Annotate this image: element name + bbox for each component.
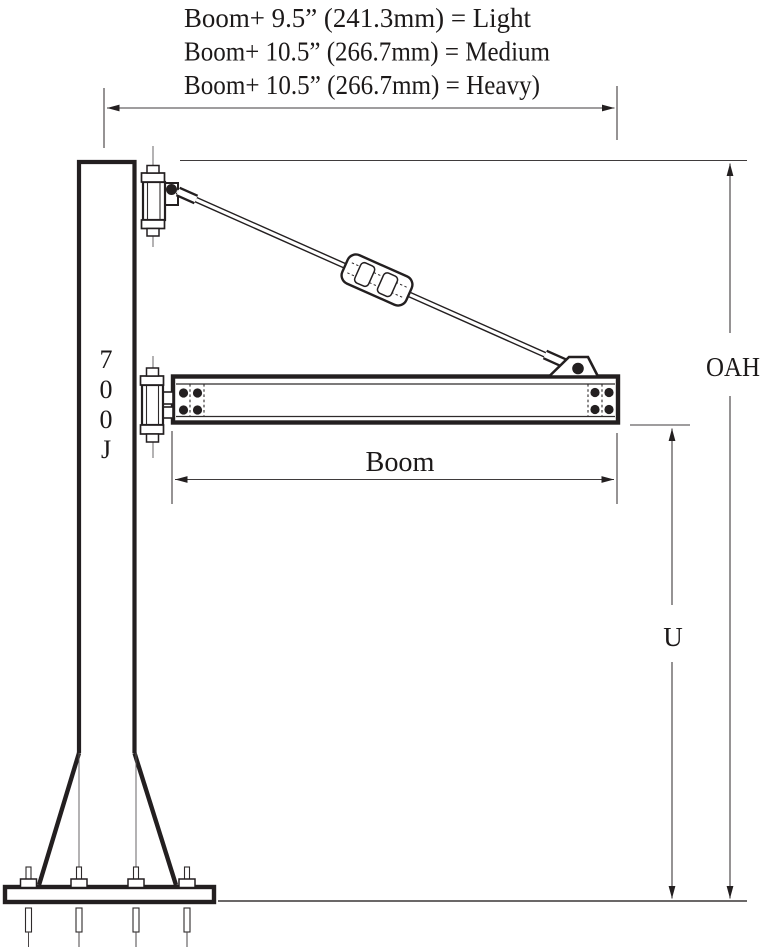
column-label-char: 0 [100, 405, 113, 434]
column-label-char: J [101, 435, 111, 464]
boom-pivot-assembly [141, 356, 174, 458]
jib-crane-diagram: Boom+ 9.5” (241.3mm) = Light Boom+ 10.5”… [0, 0, 764, 950]
mast-column: 7 0 0 J [39, 162, 176, 886]
anchor-bolt [179, 867, 195, 947]
boom-length-annotations: Boom+ 9.5” (241.3mm) = Light Boom+ 10.5”… [184, 3, 550, 100]
pivot-nut-top [141, 376, 164, 385]
boom-label: Boom [366, 447, 435, 478]
jib-crane-diagram-page: Boom+ 9.5” (241.3mm) = Light Boom+ 10.5”… [0, 0, 764, 950]
annotation-medium: Boom+ 10.5” (266.7mm) = Medium [184, 37, 550, 67]
column-model-label: 7 0 0 J [100, 345, 113, 464]
anchor-bolt [128, 867, 144, 947]
top-pivot-pin [166, 184, 177, 195]
boom-beam [173, 377, 618, 423]
annotation-heavy: Boom+ 10.5” (266.7mm) = Heavy) [184, 70, 540, 100]
oah-dimension: OAH [180, 161, 760, 899]
pivot-bolt-cap-top [147, 368, 159, 376]
column-fill [39, 162, 176, 885]
u-dimension: U [630, 425, 690, 899]
column-label-char: 0 [100, 375, 113, 404]
hinge-connector [163, 407, 173, 418]
anchor-bolt [71, 867, 87, 947]
boom-dimension: Boom [172, 431, 617, 504]
hinge-body [143, 182, 165, 220]
top-pivot-assembly [142, 146, 179, 247]
column-label-char: 7 [100, 345, 113, 374]
hinge-connector [163, 392, 173, 404]
tie-rod [177, 191, 572, 367]
anchor-bolt [21, 867, 37, 947]
pivot-nut-bottom [142, 220, 165, 229]
annotation-light: Boom+ 9.5” (241.3mm) = Light [184, 3, 531, 33]
pivot-bolt-cap-bottom [147, 434, 159, 442]
pivot-nut-bottom [141, 425, 164, 434]
pivot-bolt-cap-top [147, 166, 159, 174]
u-label: U [663, 622, 683, 652]
lug-pin [572, 363, 584, 375]
pivot-nut-top [142, 173, 165, 182]
oah-label: OAH [706, 352, 760, 382]
pivot-bolt-cap-bottom [147, 229, 159, 237]
base-plate [5, 887, 214, 902]
hinge-body [142, 385, 163, 425]
turnbuckle [339, 252, 416, 309]
